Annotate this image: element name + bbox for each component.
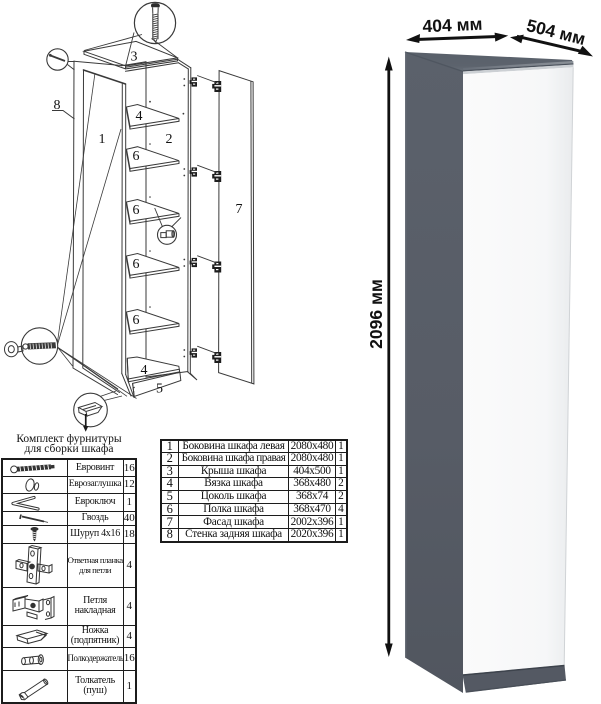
svg-text:6: 6 xyxy=(133,203,140,218)
svg-text:1: 1 xyxy=(99,132,106,147)
svg-text:3: 3 xyxy=(131,50,138,65)
svg-text:6: 6 xyxy=(133,257,140,272)
svg-text:4: 4 xyxy=(141,363,148,378)
svg-text:4: 4 xyxy=(136,109,143,124)
svg-text:2096 мм: 2096 мм xyxy=(366,279,386,349)
svg-text:2: 2 xyxy=(166,132,173,147)
svg-text:7: 7 xyxy=(236,202,243,217)
svg-text:6: 6 xyxy=(133,313,140,328)
svg-text:5: 5 xyxy=(156,382,163,397)
svg-text:504 мм: 504 мм xyxy=(524,15,587,49)
svg-text:404 мм: 404 мм xyxy=(422,14,483,37)
svg-text:6: 6 xyxy=(133,149,140,164)
